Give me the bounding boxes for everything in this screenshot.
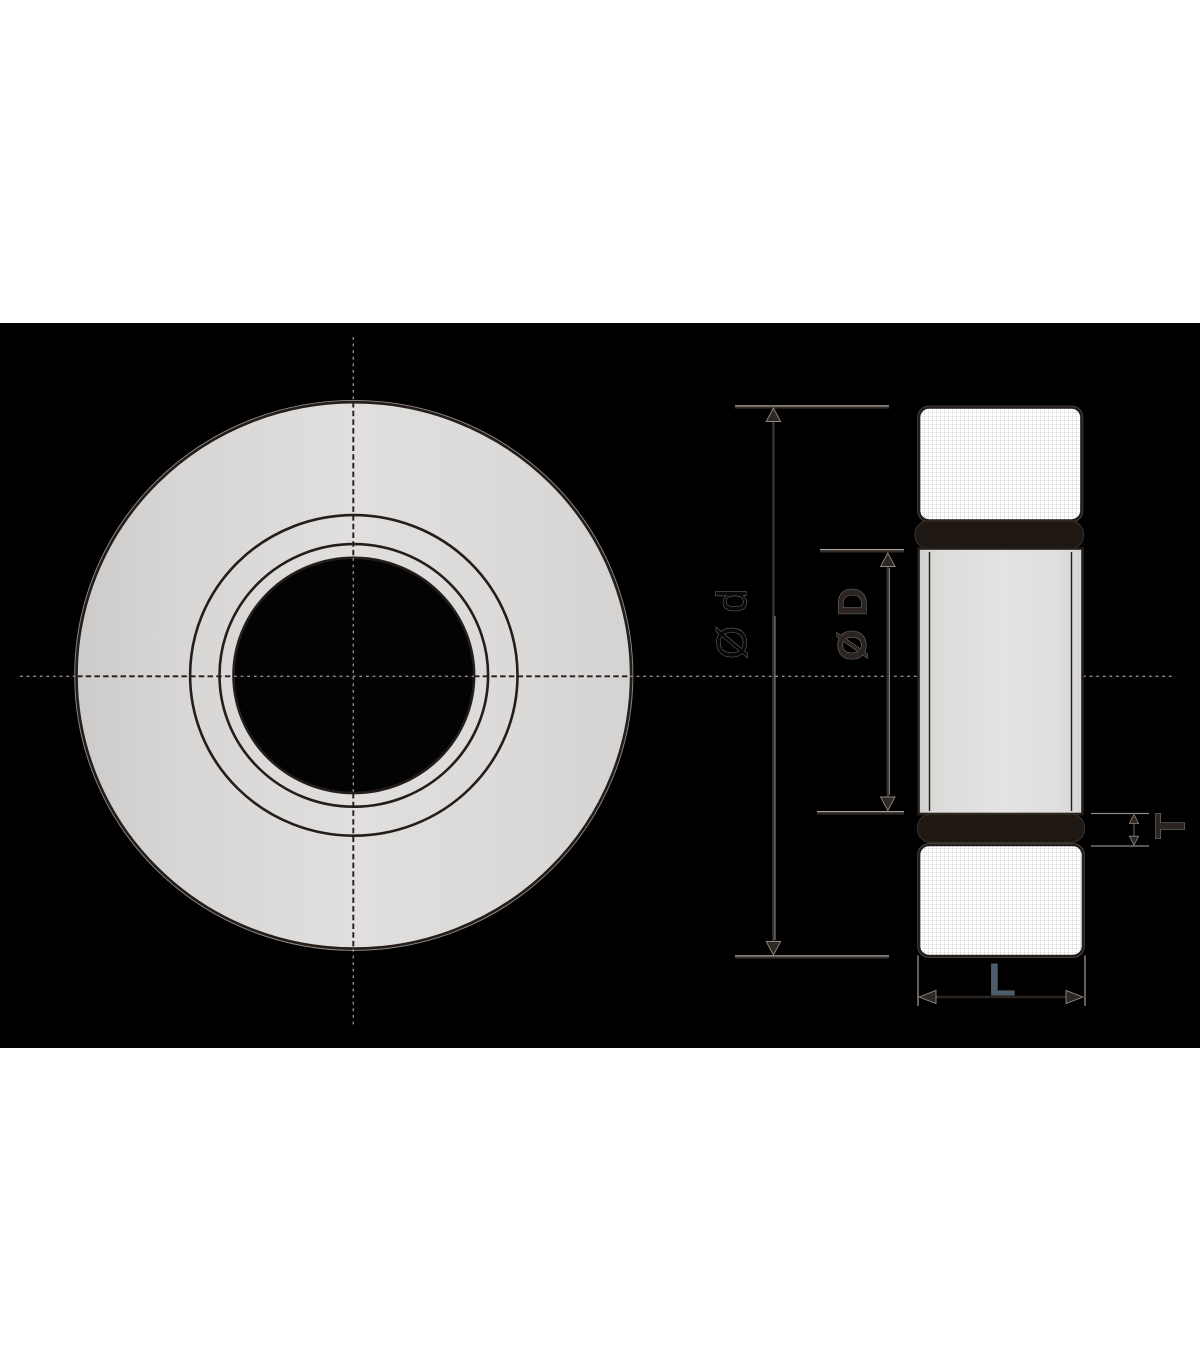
svg-text:L: L [988, 954, 1016, 1006]
svg-text:Ø d: Ø d [708, 588, 755, 659]
svg-text:Ø D: Ø D [831, 586, 875, 660]
svg-text:T: T [1147, 813, 1194, 839]
